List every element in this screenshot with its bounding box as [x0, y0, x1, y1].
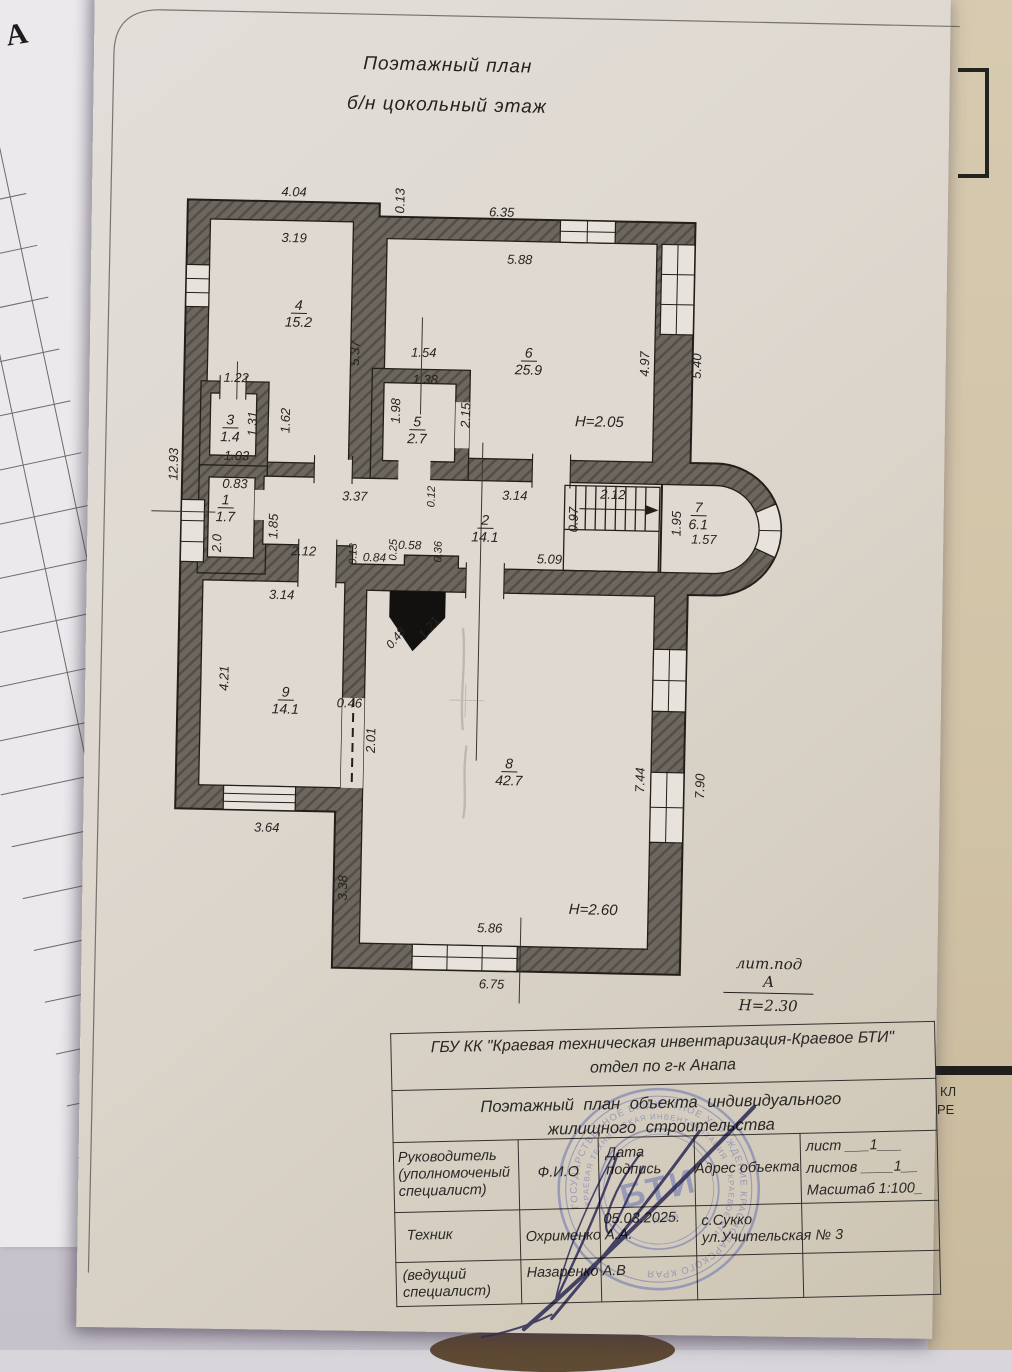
stamp-sub-text: Анапа [652, 1210, 679, 1226]
stamp-and-signature-svg: ГОСУДАРСТВЕННОЕ БЮДЖЕТНОЕ УЧРЕЖДЕНИЕ КРА… [0, 0, 1012, 1359]
title-block-layer: ГБУ КК "Краевая техническая инвентаризац… [0, 0, 1012, 1359]
round-stamp: ГОСУДАРСТВЕННОЕ БЮДЖЕТНОЕ УЧРЕЖДЕНИЕ КРА… [538, 1069, 779, 1310]
photo-of-floor-plan-document: { "page": { "title_line1": "Поэтажный пл… [0, 0, 1012, 1350]
